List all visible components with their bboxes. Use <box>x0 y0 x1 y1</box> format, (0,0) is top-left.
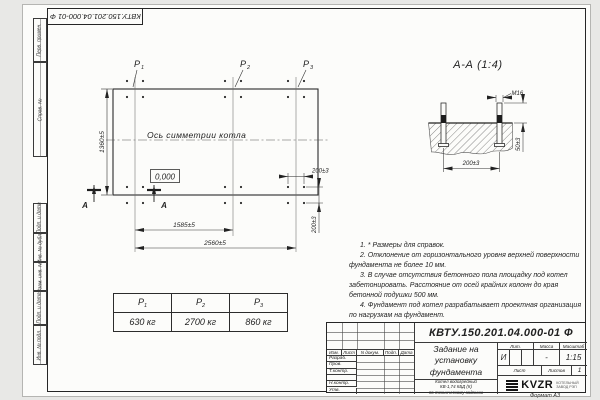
sheets-header: Листов <box>542 366 572 376</box>
load-label-p1: P1 <box>134 59 144 71</box>
dim-label-spacing: 200±3 <box>462 161 480 167</box>
col-header-izm: Изм. <box>327 349 342 356</box>
scale-header: Масштаб <box>560 343 587 350</box>
load-table-header-row: P1 P2 P3 <box>114 294 288 313</box>
mass-value: - <box>534 350 560 366</box>
dim-label-1360: 1360±5 <box>99 131 106 153</box>
load-header-p2: P2 <box>172 294 230 313</box>
dim-label-protrusion: 50±3 <box>516 137 522 151</box>
plan-view: P1 P2 P3 Ось симметрии котла 0,000 А А <box>81 59 330 252</box>
kvzr-logo-text: KVZR <box>521 379 553 391</box>
dim-label-1585: 1585±5 <box>173 222 195 229</box>
dim-label-2560: 2560±5 <box>203 240 226 247</box>
note-1: 1. * Размеры для справок. <box>349 241 587 251</box>
engineering-drawing-sheet: Перв. примен. Справ. № Подп. и дата Инв.… <box>0 0 600 400</box>
leader-p3 <box>298 70 306 87</box>
thread-callout <box>489 94 511 103</box>
load-table: P1 P2 P3 630 кг 2700 кг 860 кг <box>113 293 288 332</box>
mass-header: Масса <box>534 343 560 350</box>
lit-cell-2 <box>510 350 522 366</box>
col-header-podp: Подп. <box>384 349 399 356</box>
note-3: 3. В случае отсутствия бетонного пола пл… <box>349 271 587 301</box>
lit-cell-3 <box>522 350 534 366</box>
format-label: Формат А3 <box>500 393 590 399</box>
load-table-value-row: 630 кг 2700 кг 860 кг <box>114 313 288 332</box>
load-label-p2: P2 <box>240 59 250 71</box>
anchor-bolt-dots <box>126 80 305 204</box>
load-value-p1: 630 кг <box>114 313 172 332</box>
lit-header: Лит. <box>498 343 534 350</box>
sheets-value: 1 <box>572 366 587 376</box>
notes-block: 1. * Размеры для справок. 2. Отклонение … <box>349 241 587 321</box>
section-cut-marks: А А <box>81 185 167 210</box>
document-title: Задание на установку фундамента <box>414 343 498 379</box>
col-header-list: Лист <box>342 349 357 356</box>
load-label-p3: P3 <box>303 59 314 71</box>
col-header-ndoc: N докум. <box>357 349 384 356</box>
leader-p2 <box>235 70 243 87</box>
section-title: А-А (1:4) <box>452 59 502 71</box>
title-block-designation: КВТУ.150.201.04.000-01 Ф <box>414 323 587 343</box>
load-value-p2: 2700 кг <box>172 313 230 332</box>
foundation-outline <box>113 89 318 195</box>
note-2: 2. Отклонение от горизонтального уровня … <box>349 251 587 271</box>
row-utv: Утв. <box>327 388 357 395</box>
section-letter-1: А <box>81 201 88 210</box>
lit-value: И <box>498 350 510 366</box>
section-view: А-А (1:4) М16 <box>429 59 528 172</box>
org-name: КОТЕЛЬНЫЙ ЗАВОД РЭП <box>556 381 579 390</box>
load-header-p3: P3 <box>230 294 288 313</box>
elevation-mark: 0,000 <box>155 173 176 182</box>
sheet-header: Лист <box>498 366 542 376</box>
thread-label: М16 <box>512 91 524 97</box>
product-name: Котел водогрейный КВ-1,74 КБД (К) по тех… <box>414 379 498 394</box>
title-block: Изм. Лист N докум. Подп. Дата Разраб. Пр… <box>326 322 586 393</box>
dim-label-bolt-y: 200±3 <box>312 216 318 234</box>
load-header-p1: P1 <box>114 294 172 313</box>
section-letter-2: А <box>160 201 167 210</box>
symmetry-axis-label: Ось симметрии котла <box>147 130 246 140</box>
note-4: 4. Фундамент под котел разрабатывает про… <box>349 301 587 321</box>
dim-label-bolt-x: 200±3 <box>311 169 329 175</box>
scale-value: 1:15 <box>560 350 587 366</box>
kvzr-emblem-icon <box>506 380 518 391</box>
load-value-p3: 860 кг <box>230 313 288 332</box>
company-logo-cell: KVZR КОТЕЛЬНЫЙ ЗАВОД РЭП <box>498 376 587 394</box>
col-header-data: Дата <box>399 349 414 356</box>
